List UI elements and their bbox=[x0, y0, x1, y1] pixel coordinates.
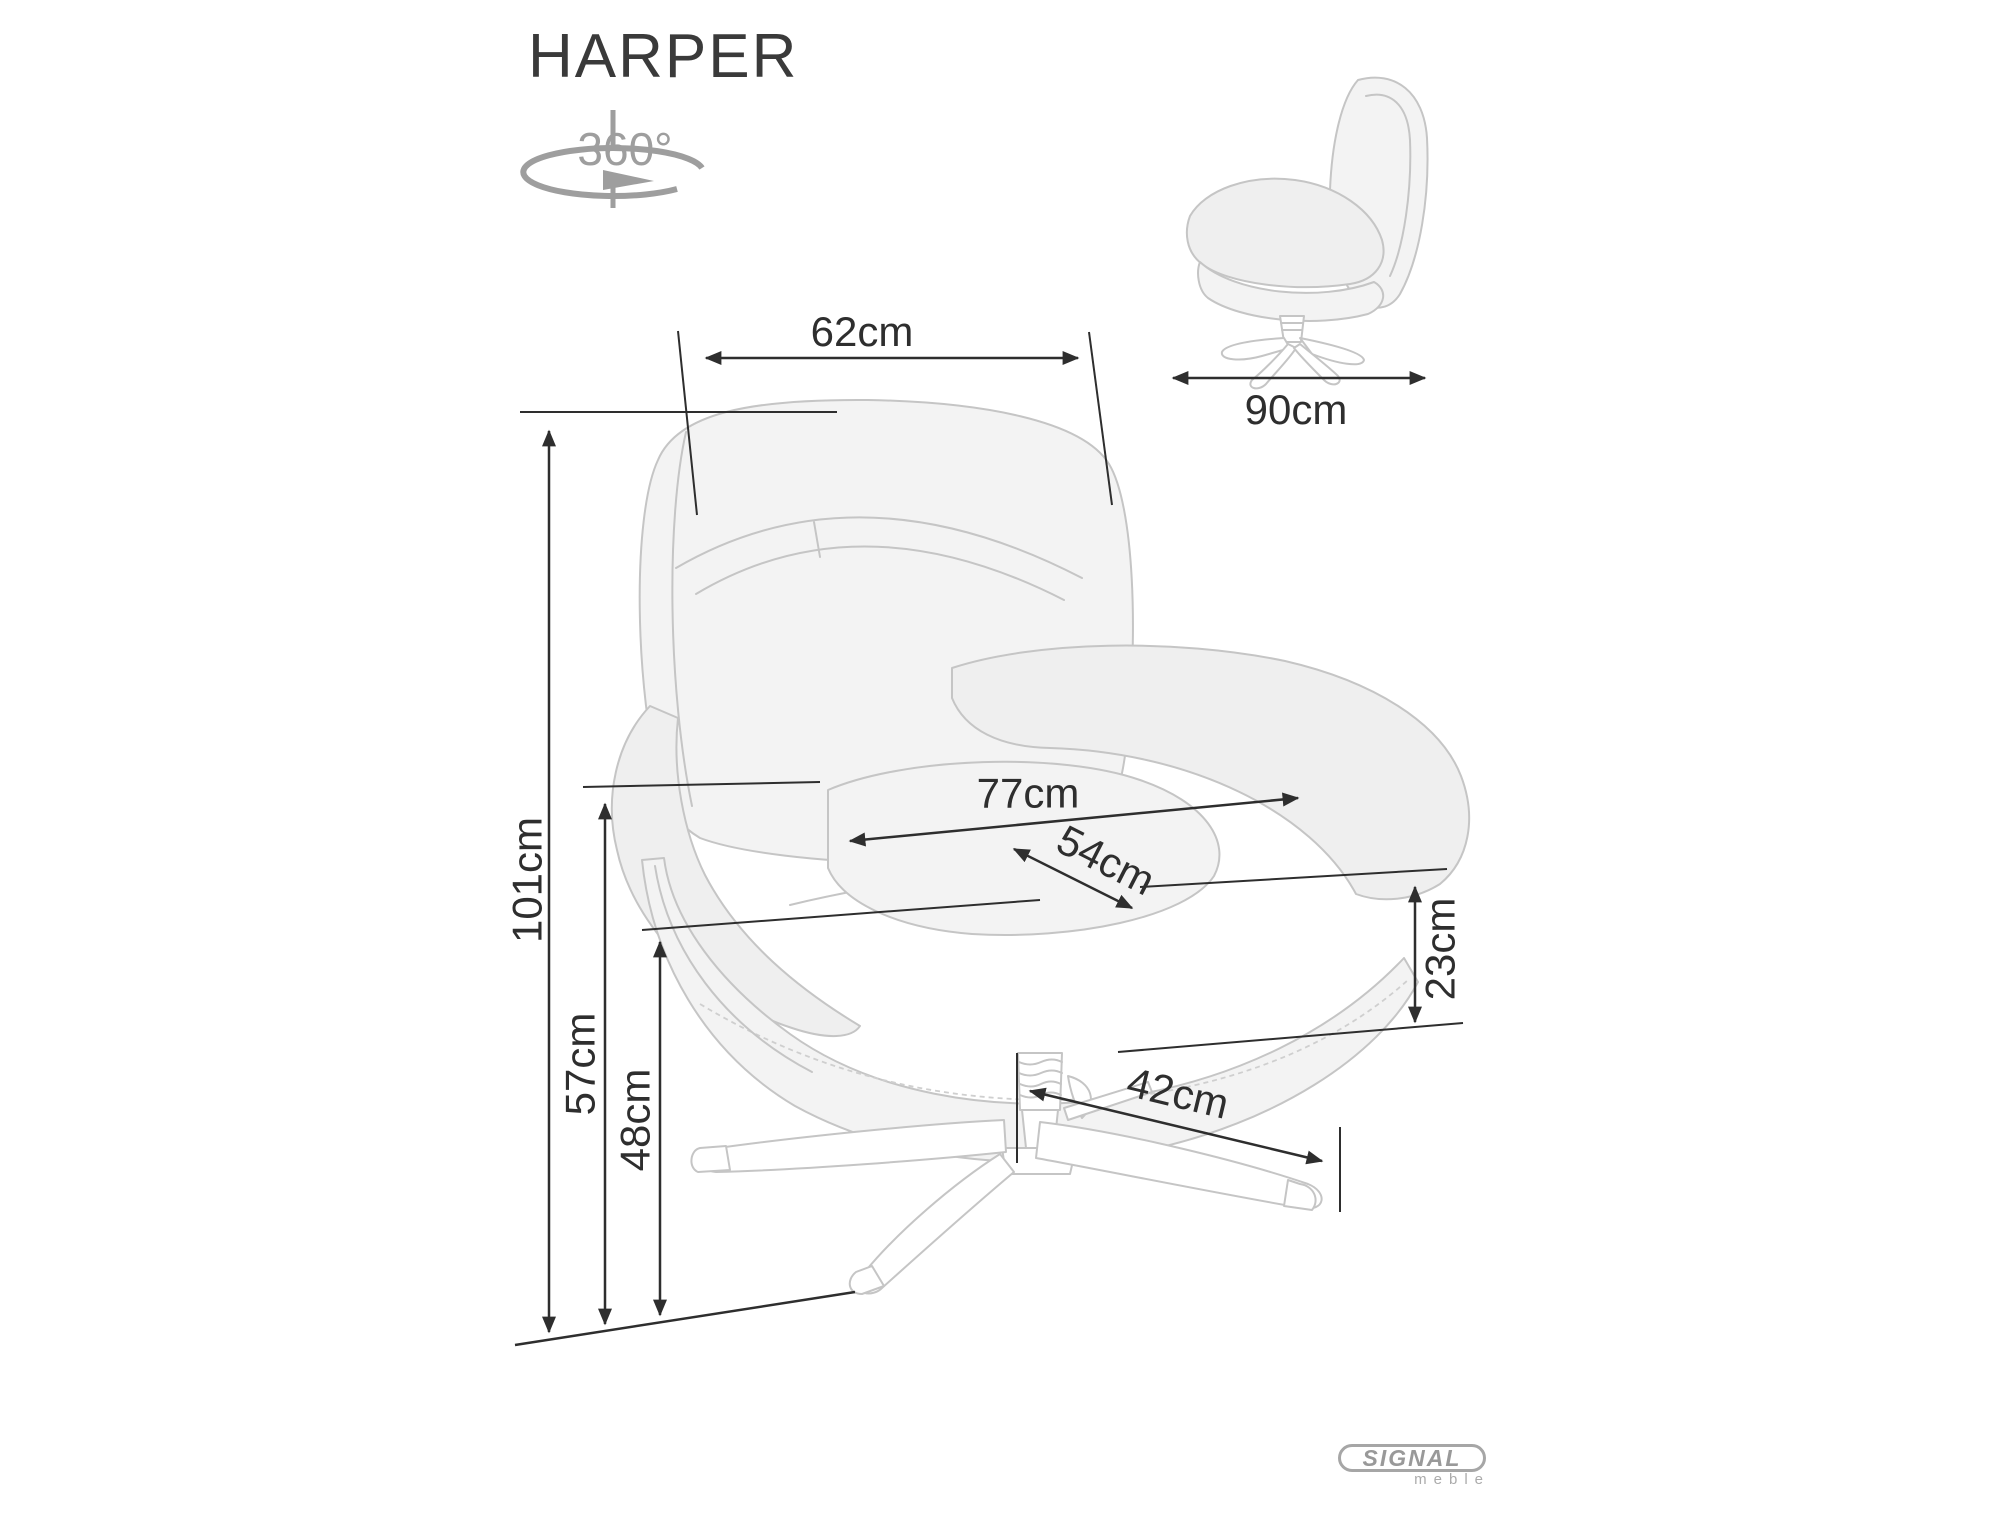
base-foot-left bbox=[691, 1146, 730, 1172]
dim-label-62: 62cm bbox=[811, 308, 914, 355]
brand-logo: SIGNAL meble bbox=[1338, 1444, 1498, 1487]
dim-label-57: 57cm bbox=[557, 1013, 604, 1116]
base-leg-front bbox=[858, 1154, 1014, 1293]
logo-brand-text: SIGNAL bbox=[1363, 1447, 1462, 1470]
dim-label-101: 101cm bbox=[504, 817, 551, 943]
dim-label-77: 77cm bbox=[977, 770, 1080, 817]
logo-meble-text: meble bbox=[1338, 1472, 1498, 1487]
dim-label-90: 90cm bbox=[1245, 386, 1348, 433]
rotation-label: 360° bbox=[577, 123, 672, 175]
dim-label-23: 23cm bbox=[1417, 898, 1464, 1001]
floor-line bbox=[515, 1292, 855, 1345]
chair-side-sketch bbox=[1187, 78, 1428, 389]
rotation-360-icon: 360° bbox=[523, 110, 702, 208]
dim-label-48: 48cm bbox=[612, 1069, 659, 1172]
datasheet-canvas: HARPER 360° bbox=[0, 0, 2000, 1530]
logo-signal-wordmark: SIGNAL bbox=[1338, 1444, 1486, 1472]
dimension-drawing: 360° bbox=[0, 0, 2000, 1530]
